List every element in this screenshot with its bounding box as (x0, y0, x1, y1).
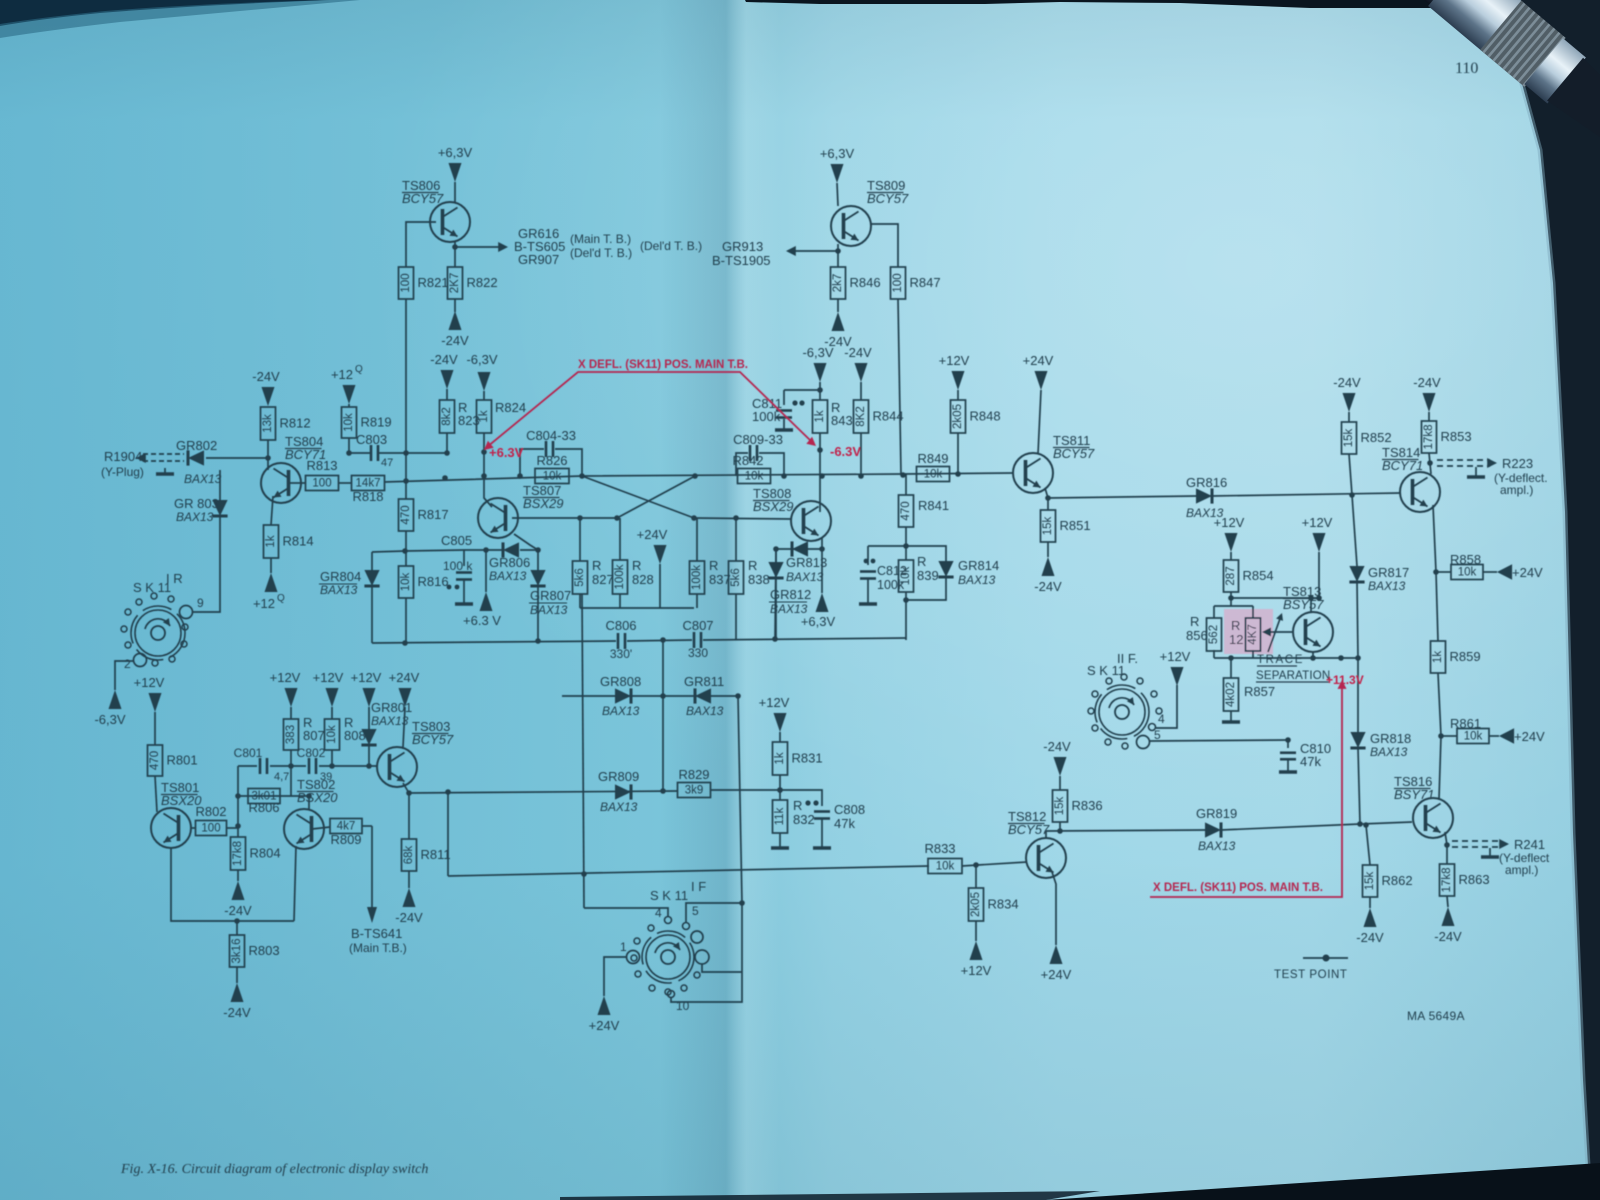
svg-text:+6,3V: +6,3V (801, 614, 836, 629)
svg-text:C806: C806 (605, 618, 636, 633)
svg-text:+12V: +12V (759, 695, 790, 710)
svg-text:GR811: GR811 (684, 674, 724, 689)
svg-text:Q: Q (355, 364, 363, 375)
svg-text:R822: R822 (467, 275, 498, 290)
svg-text:BCY57: BCY57 (402, 191, 444, 206)
svg-text:10k: 10k (543, 471, 562, 483)
svg-text:-24V: -24V (1043, 739, 1071, 754)
svg-text:-24V: -24V (844, 345, 872, 360)
svg-text:17k8: 17k8 (1441, 868, 1453, 893)
svg-text:R852: R852 (1361, 430, 1392, 445)
svg-text:C807: C807 (682, 618, 713, 633)
svg-text:Fig. X-16. Circuit diagram of: Fig. X-16. Circuit diagram of electronic… (120, 1162, 428, 1177)
svg-text:R847: R847 (910, 275, 941, 290)
svg-text:+12V: +12V (134, 675, 165, 690)
svg-text:R: R (709, 558, 718, 573)
svg-text:C803: C803 (356, 432, 387, 447)
svg-text:1k: 1k (814, 410, 826, 422)
svg-text:R834: R834 (988, 897, 1019, 912)
svg-text:BAX13: BAX13 (371, 714, 409, 728)
svg-text:R821: R821 (418, 275, 449, 290)
svg-text:R862: R862 (1382, 873, 1413, 888)
svg-text:R831: R831 (792, 751, 823, 766)
svg-text:+12V: +12V (961, 963, 992, 978)
svg-text:828: 828 (632, 572, 654, 587)
svg-text:+24V: +24V (637, 527, 668, 542)
svg-text:R857: R857 (1244, 684, 1275, 699)
svg-text:X DEFL. (SK11) POS. MAIN T.B.: X DEFL. (SK11) POS. MAIN T.B. (578, 359, 748, 371)
svg-text:GR819: GR819 (1196, 806, 1237, 821)
svg-text:1k: 1k (478, 410, 490, 422)
svg-text:1: 1 (620, 940, 627, 954)
svg-text:10k: 10k (924, 469, 943, 481)
svg-text:8K2: 8K2 (855, 406, 867, 426)
svg-text:R: R (1231, 618, 1240, 633)
svg-text:R: R (748, 558, 757, 573)
svg-text:R804: R804 (250, 846, 281, 861)
svg-text:330': 330' (610, 647, 632, 661)
svg-text:+6.3V: +6.3V (489, 445, 524, 460)
svg-text:12: 12 (1229, 632, 1243, 647)
svg-text:17k8: 17k8 (1423, 425, 1435, 450)
svg-text:47: 47 (381, 457, 393, 469)
svg-text:R861: R861 (1450, 716, 1481, 731)
svg-text:BSY71: BSY71 (1394, 787, 1434, 802)
svg-text:+24V: +24V (389, 670, 420, 685)
svg-text:68k: 68k (403, 845, 415, 864)
svg-text:R809: R809 (330, 832, 361, 847)
svg-text:17k8: 17k8 (232, 841, 244, 866)
svg-text:BAX13: BAX13 (184, 472, 222, 486)
svg-text:287: 287 (1225, 566, 1237, 585)
svg-text:R816: R816 (418, 574, 449, 589)
svg-text:839: 839 (917, 568, 939, 583)
svg-text:100 k: 100 k (443, 559, 473, 573)
svg-text:S K 11: S K 11 (650, 888, 688, 903)
svg-text:100k: 100k (691, 565, 703, 590)
svg-text:100: 100 (892, 273, 904, 292)
svg-text:+12: +12 (253, 596, 275, 611)
svg-text:(Main T.B.): (Main T.B.) (349, 941, 407, 955)
svg-text:5: 5 (1154, 728, 1161, 742)
svg-text:100k: 100k (614, 564, 626, 589)
svg-text:MA 5649A: MA 5649A (1407, 1009, 1465, 1023)
svg-text:R863: R863 (1459, 872, 1490, 887)
svg-text:I F: I F (691, 879, 706, 894)
svg-text:BAX13: BAX13 (1370, 745, 1408, 759)
svg-text:3k16: 3k16 (231, 939, 243, 964)
svg-text:13k: 13k (262, 414, 274, 433)
svg-text:+12V: +12V (1302, 515, 1333, 530)
svg-text:R803: R803 (249, 943, 280, 958)
svg-text:2k7: 2k7 (832, 274, 844, 293)
svg-text:1k: 1k (774, 752, 786, 764)
svg-text:4,7: 4,7 (274, 771, 289, 783)
svg-text:-24V: -24V (430, 352, 458, 367)
svg-text:10k: 10k (1464, 731, 1483, 743)
svg-text:R801: R801 (167, 753, 198, 768)
svg-text:TRACE: TRACE (1257, 654, 1304, 666)
svg-text:+6,3V: +6,3V (438, 145, 473, 160)
svg-text:R814: R814 (283, 534, 314, 549)
svg-text:10k: 10k (1458, 567, 1477, 579)
svg-text:GR818: GR818 (1370, 731, 1411, 746)
svg-text:ampl.): ampl.) (1505, 863, 1538, 877)
svg-text:R829: R829 (678, 767, 709, 782)
svg-text:BAX13: BAX13 (530, 603, 568, 617)
svg-text:BCY57: BCY57 (412, 732, 454, 747)
svg-text:15k: 15k (1364, 871, 1376, 890)
svg-text:R842: R842 (732, 453, 763, 468)
svg-text:4k7: 4k7 (337, 821, 356, 833)
svg-text:4K7: 4K7 (1247, 624, 1259, 644)
svg-text:10k: 10k (343, 413, 355, 432)
svg-text:GR817: GR817 (1368, 565, 1409, 580)
svg-text:BAX13: BAX13 (176, 510, 214, 524)
svg-text:II F.: II F. (1117, 651, 1138, 666)
svg-text:GR806: GR806 (489, 555, 530, 570)
svg-text:R: R (592, 558, 601, 573)
svg-text:GR816: GR816 (1186, 475, 1227, 490)
svg-text:GR913: GR913 (722, 239, 763, 254)
svg-text:R811: R811 (421, 847, 451, 862)
svg-text:100: 100 (201, 823, 220, 835)
svg-text:47k: 47k (1300, 754, 1321, 769)
svg-text:GR814: GR814 (958, 558, 999, 573)
svg-text:+6.3 V: +6.3 V (463, 613, 501, 628)
svg-text:+12: +12 (331, 367, 353, 382)
svg-text:-24V: -24V (1413, 375, 1441, 390)
svg-text:R859: R859 (1450, 649, 1481, 664)
svg-text:838: 838 (748, 572, 770, 587)
svg-text:1k: 1k (265, 535, 277, 547)
svg-text:330: 330 (688, 646, 708, 660)
svg-text:-24V: -24V (224, 903, 252, 918)
svg-text:(Del'd T. B.): (Del'd T. B.) (640, 239, 702, 253)
svg-text:-6,3V: -6,3V (802, 345, 833, 360)
svg-text:Q: Q (277, 593, 285, 604)
svg-text:R: R (1190, 614, 1199, 629)
svg-text:827: 827 (592, 572, 614, 587)
svg-text:856: 856 (1186, 628, 1208, 643)
svg-text:R848: R848 (970, 409, 1001, 424)
svg-text:100: 100 (400, 273, 412, 292)
svg-text:11k: 11k (774, 807, 786, 825)
svg-text:+12V: +12V (1160, 649, 1191, 664)
svg-text:R812: R812 (280, 416, 311, 431)
svg-text:-6.3V: -6.3V (830, 444, 861, 459)
svg-text:I R: I R (166, 571, 183, 586)
svg-text:+24V: +24V (1514, 729, 1545, 744)
svg-text:BAX13: BAX13 (958, 573, 996, 587)
svg-text:-24V: -24V (395, 910, 423, 925)
svg-text:10k: 10k (936, 861, 955, 873)
svg-text:10k: 10k (326, 725, 338, 744)
svg-text:-6,3V: -6,3V (466, 352, 497, 367)
svg-text:9: 9 (197, 596, 204, 610)
svg-text:110: 110 (1455, 60, 1478, 77)
svg-text:BCY57: BCY57 (1053, 446, 1095, 461)
svg-text:C804-33: C804-33 (526, 428, 576, 443)
svg-text:BSX29: BSX29 (523, 496, 563, 511)
svg-text:832: 832 (793, 812, 815, 827)
svg-text:+24V: +24V (1512, 565, 1543, 580)
svg-text:R836: R836 (1072, 798, 1103, 813)
svg-text:100: 100 (312, 478, 331, 490)
svg-text:BCY71: BCY71 (1382, 458, 1423, 473)
svg-text:+24V: +24V (1023, 353, 1054, 368)
svg-text:SEPARATION: SEPARATION (1256, 670, 1330, 682)
svg-text:BAX13: BAX13 (320, 583, 358, 597)
svg-text:R806: R806 (248, 800, 279, 815)
svg-text:843: 843 (831, 413, 853, 428)
svg-text:807: 807 (303, 728, 325, 743)
svg-text:R833: R833 (924, 841, 955, 856)
svg-text:4k02: 4k02 (1225, 682, 1237, 707)
svg-text:+24V: +24V (589, 1018, 620, 1033)
svg-text:470: 470 (400, 505, 412, 524)
svg-text:GR809: GR809 (598, 769, 639, 784)
svg-text:-24V: -24V (223, 1005, 251, 1020)
svg-text:837: 837 (709, 572, 731, 587)
svg-text:10k: 10k (900, 566, 912, 585)
svg-text:+12V: +12V (351, 670, 382, 685)
svg-text:4: 4 (1158, 712, 1165, 726)
svg-text:R851: R851 (1060, 518, 1091, 533)
svg-text:15k: 15k (1054, 796, 1066, 815)
svg-text:C805: C805 (441, 533, 472, 548)
svg-text:383: 383 (285, 725, 297, 744)
svg-text:15k: 15k (1042, 516, 1054, 535)
svg-text:R858: R858 (1450, 552, 1481, 567)
svg-text:GR813: GR813 (786, 555, 827, 570)
svg-text:C802: C802 (297, 746, 326, 760)
svg-text:(Del'd T. B.): (Del'd T. B.) (570, 246, 632, 260)
svg-text:2: 2 (124, 657, 131, 671)
svg-text:R826: R826 (536, 453, 567, 468)
svg-text:8k2: 8k2 (441, 407, 453, 426)
svg-text:14k7: 14k7 (356, 478, 381, 490)
svg-text:-24V: -24V (1333, 375, 1361, 390)
svg-text:100k: 100k (752, 409, 781, 424)
svg-text:3k9: 3k9 (685, 785, 704, 797)
svg-text:-24V: -24V (441, 333, 469, 348)
svg-text:+6,3V: +6,3V (820, 146, 855, 161)
svg-text:C808: C808 (834, 802, 865, 817)
svg-text:BCY57: BCY57 (1008, 822, 1050, 837)
svg-text:BAX13: BAX13 (686, 704, 724, 718)
svg-text:BSY57: BSY57 (1283, 597, 1324, 612)
svg-text:+11.3V: +11.3V (1326, 673, 1364, 687)
svg-text:C801: C801 (234, 746, 263, 760)
svg-text:(Main T. B.): (Main T. B.) (570, 232, 631, 246)
svg-text:10: 10 (676, 999, 690, 1013)
svg-text:BAX13: BAX13 (489, 569, 527, 583)
svg-text:5k6: 5k6 (730, 568, 742, 587)
svg-text:BAX13: BAX13 (1368, 579, 1406, 593)
svg-text:1k: 1k (1432, 651, 1444, 663)
svg-text:R241: R241 (1514, 837, 1545, 852)
svg-text:+12V: +12V (1214, 515, 1245, 530)
svg-text:R853: R853 (1441, 429, 1472, 444)
svg-text:R223: R223 (1502, 456, 1533, 471)
svg-text:15k: 15k (1343, 428, 1355, 447)
svg-text:-24V: -24V (1034, 579, 1062, 594)
svg-text:10k: 10k (400, 572, 412, 591)
svg-text:R817: R817 (418, 507, 449, 522)
svg-text:TEST POINT: TEST POINT (1274, 969, 1348, 981)
svg-text:GR804: GR804 (320, 569, 361, 584)
svg-text:R846: R846 (850, 275, 881, 290)
svg-text:+12V: +12V (939, 353, 970, 368)
svg-text:R819: R819 (361, 415, 392, 430)
svg-text:R844: R844 (873, 409, 904, 424)
svg-text:R: R (632, 558, 641, 573)
svg-text:B-TS1905: B-TS1905 (712, 253, 771, 268)
svg-text:+12V: +12V (270, 670, 301, 685)
svg-text:GR907: GR907 (518, 252, 559, 267)
svg-text:C809-33: C809-33 (733, 432, 783, 447)
svg-text:R849: R849 (917, 451, 948, 466)
svg-text:+12V: +12V (313, 670, 344, 685)
svg-text:R1904: R1904 (104, 449, 142, 464)
svg-text:R813: R813 (306, 458, 337, 473)
svg-text:BAX13: BAX13 (786, 570, 824, 584)
svg-text:+24V: +24V (1041, 967, 1072, 982)
svg-text:R824: R824 (495, 400, 526, 415)
svg-text:562: 562 (1208, 625, 1220, 644)
svg-text:R854: R854 (1243, 568, 1274, 583)
svg-text:47k: 47k (834, 816, 855, 831)
svg-text:-6,3V: -6,3V (94, 712, 125, 727)
svg-text:BAX13: BAX13 (600, 800, 638, 814)
svg-text:5k6: 5k6 (574, 568, 586, 587)
svg-text:BAX13: BAX13 (1198, 839, 1236, 853)
svg-text:470: 470 (900, 501, 912, 520)
svg-text:(Y-Plug): (Y-Plug) (101, 465, 144, 479)
svg-text:B-TS641: B-TS641 (351, 926, 402, 941)
svg-text:BSX20: BSX20 (297, 790, 338, 805)
svg-text:-24V: -24V (1356, 930, 1384, 945)
svg-text:GR802: GR802 (176, 438, 217, 453)
svg-text:10k: 10k (745, 471, 764, 483)
svg-text:2k05: 2k05 (952, 404, 964, 429)
svg-text:BCY57: BCY57 (867, 191, 909, 206)
svg-text:R818: R818 (352, 489, 383, 504)
svg-text:X DEFL. (SK11) POS. MAIN T.B.: X DEFL. (SK11) POS. MAIN T.B. (1153, 882, 1323, 894)
svg-text:GR808: GR808 (600, 674, 641, 689)
svg-text:-24V: -24V (252, 369, 280, 384)
svg-text:2k05: 2k05 (970, 892, 982, 917)
svg-text:-24V: -24V (1434, 929, 1462, 944)
svg-text:470: 470 (149, 751, 161, 770)
svg-text:GR 803: GR 803 (174, 496, 219, 511)
svg-text:2K7: 2K7 (449, 273, 461, 293)
svg-text:ampl.): ampl.) (1500, 483, 1533, 497)
svg-text:5: 5 (692, 904, 699, 918)
svg-text:R: R (917, 554, 926, 569)
svg-text:BAX13: BAX13 (602, 704, 640, 718)
svg-text:GR807: GR807 (530, 588, 571, 603)
svg-text:BSX29: BSX29 (753, 499, 793, 514)
svg-text:R: R (793, 798, 802, 813)
svg-text:R802: R802 (195, 804, 226, 819)
svg-text:R841: R841 (918, 498, 949, 513)
